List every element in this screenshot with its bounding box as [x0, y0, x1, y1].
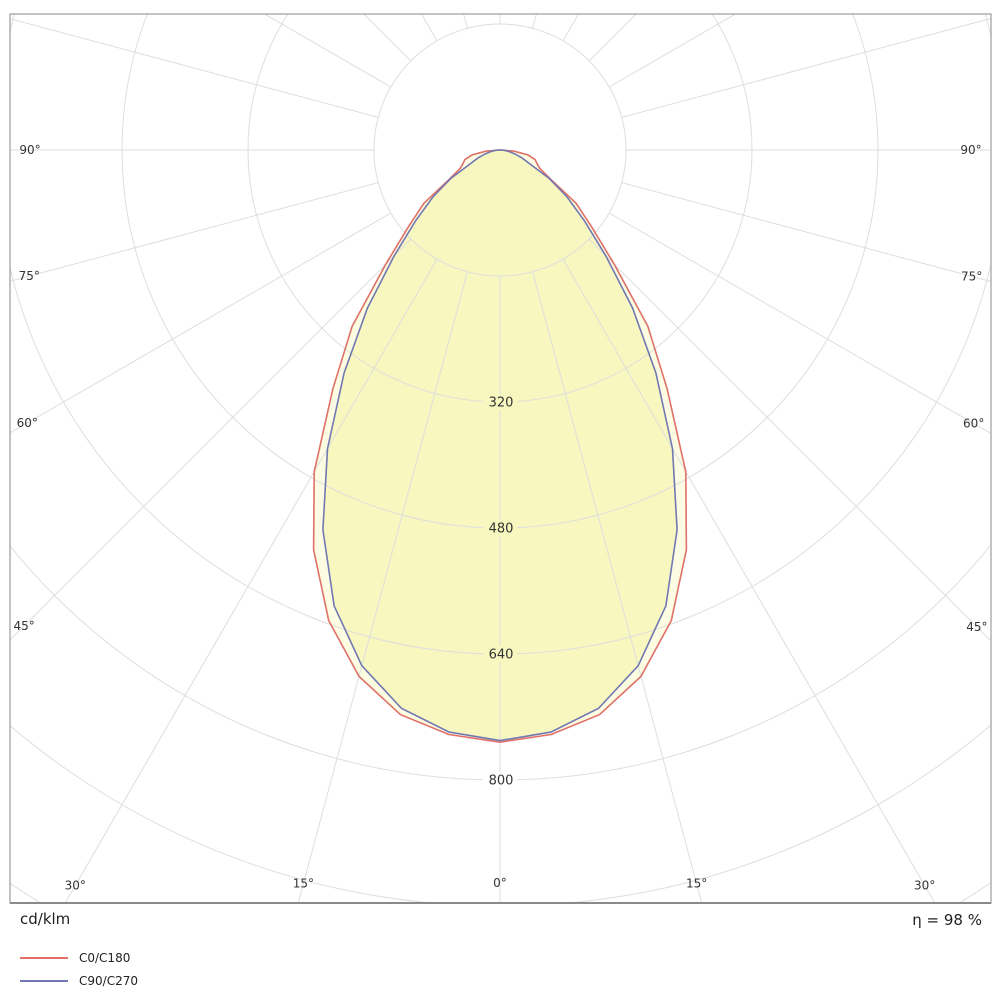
svg-text:60°: 60° [17, 416, 38, 430]
svg-text:75°: 75° [961, 269, 982, 283]
legend-label-c0: C0/C180 [79, 951, 130, 965]
svg-text:90°: 90° [960, 143, 981, 157]
photometric-diagram: 3204806408000°15°15°30°30°45°45°60°60°75… [0, 0, 1000, 1000]
svg-text:45°: 45° [966, 620, 987, 634]
unit-label: cd/klm [20, 910, 70, 928]
legend-line-c90-icon [20, 980, 68, 982]
polar-plot: 3204806408000°15°15°30°30°45°45°60°60°75… [0, 0, 1000, 1000]
legend-row-c90: C90/C270 [20, 969, 138, 992]
legend: C0/C180 C90/C270 [20, 946, 138, 992]
svg-text:15°: 15° [686, 877, 707, 891]
svg-text:800: 800 [489, 774, 514, 789]
svg-text:30°: 30° [65, 879, 86, 893]
legend-line-c0-icon [20, 957, 68, 959]
efficiency-label: η = 98 % [912, 911, 982, 929]
plot-area: 320480640800 [0, 0, 1000, 1000]
svg-text:60°: 60° [963, 417, 984, 431]
legend-label-c90: C90/C270 [79, 974, 138, 988]
svg-text:15°: 15° [293, 877, 314, 891]
svg-text:0°: 0° [493, 876, 507, 890]
svg-text:480: 480 [489, 522, 514, 537]
svg-text:90°: 90° [19, 143, 40, 157]
svg-text:640: 640 [489, 648, 514, 663]
svg-text:30°: 30° [914, 879, 935, 893]
svg-text:75°: 75° [19, 269, 40, 283]
legend-row-c0: C0/C180 [20, 946, 138, 969]
svg-text:45°: 45° [13, 619, 34, 633]
svg-text:320: 320 [489, 396, 514, 411]
